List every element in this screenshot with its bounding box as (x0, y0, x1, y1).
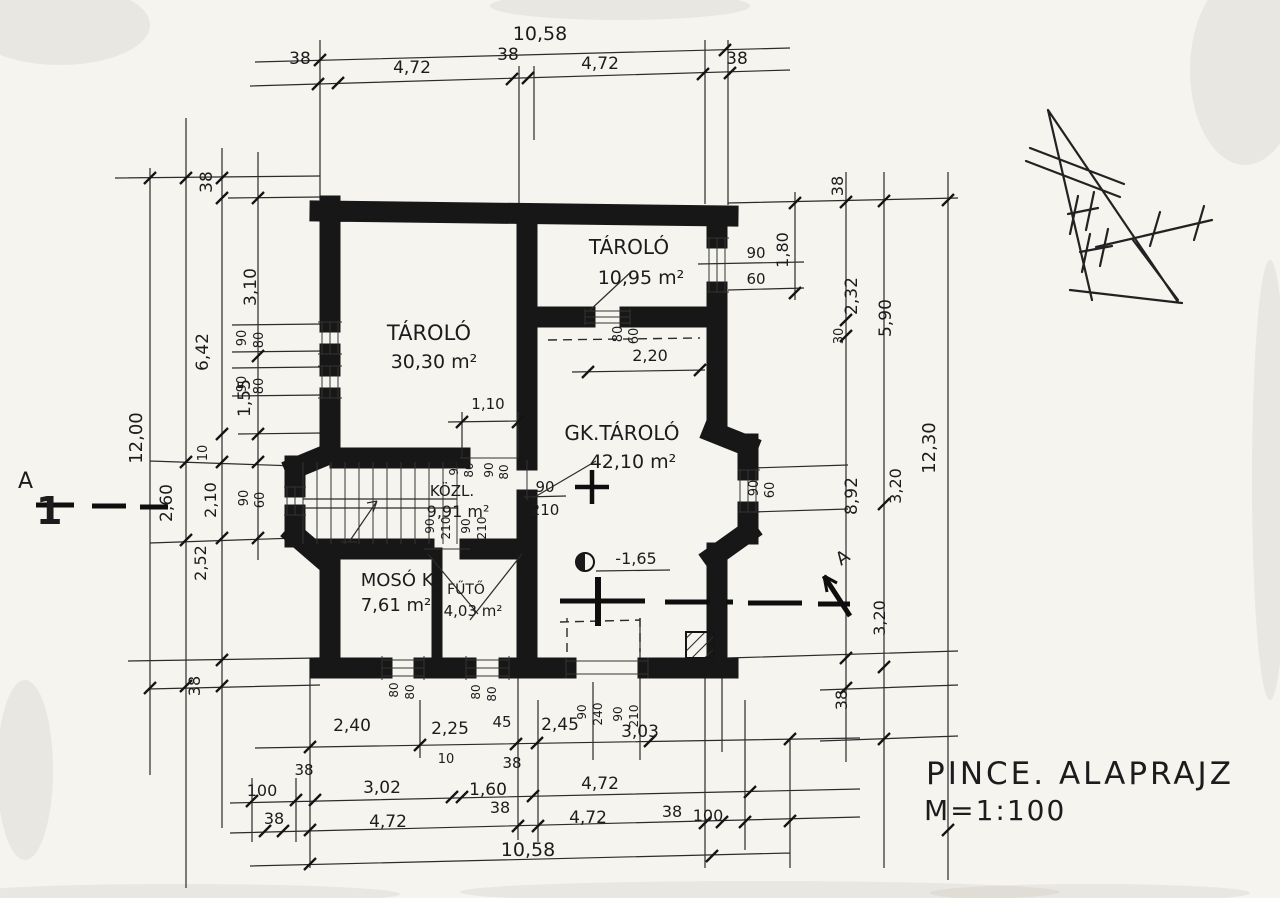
door-size-mark: 240 (591, 703, 605, 726)
dim-left: 38 (197, 171, 217, 193)
dim-bottom: 3,02 (363, 778, 401, 798)
dim-left: 2,52 (191, 545, 210, 581)
dim-right: 38 (828, 176, 847, 196)
right-dimension-chains: 38 1,80 2,32 30 5,90 12,30 8,92 3,20 3,2… (698, 172, 958, 880)
drawing-title: PINCE. ALAPRAJZ (926, 756, 1234, 792)
room-area: 9,91 m² (427, 502, 490, 521)
section-label-left: A (18, 469, 33, 494)
dim-bottom: 1,60 (469, 780, 507, 800)
opening-mark: 90 (235, 330, 250, 347)
section-number: 1 (36, 489, 62, 533)
door-size-mark: 90 (575, 704, 589, 719)
dim-left: 2,60 (157, 484, 177, 522)
opening-mark: 80 (387, 682, 401, 697)
room-name: FŰTŐ (447, 580, 485, 598)
level-mark: -1,65 (576, 549, 657, 571)
dim-right: 5,90 (876, 299, 896, 337)
dim-bottom: 2,40 (333, 716, 371, 736)
dim-top-seg: 38 (289, 49, 311, 69)
dim-left: 10 (196, 445, 211, 462)
dim-right: 8,92 (842, 477, 862, 515)
opening-mark: 80 (462, 462, 476, 477)
dim-right: 3,20 (886, 468, 905, 504)
room-area: 10,95 m² (598, 267, 685, 289)
opening-mark: 90 (447, 460, 461, 475)
section-label-right: A (832, 545, 855, 570)
dim-top-seg: 38 (497, 45, 519, 65)
dim-bottom: 100 (693, 806, 724, 825)
scanned-floor-plan: 10,58 38 4,72 38 4,72 38 38 3,10 6,42 1,… (0, 0, 1280, 898)
dim-right: 12,30 (919, 422, 940, 474)
room-name: MOSÓ K. (361, 569, 440, 591)
dim-right: 2,32 (842, 277, 862, 315)
opening-mark: 80 (403, 684, 417, 699)
dim-bottom: 38 (662, 802, 682, 821)
dim-bottom: 100 (247, 781, 278, 800)
opening-mark: 60 (746, 270, 765, 288)
dim-bottom: 4,72 (581, 774, 619, 794)
opening-mark: 80 (611, 326, 626, 343)
opening-mark: 80 (252, 378, 267, 395)
room-name: TÁROLÓ (588, 235, 669, 259)
opening-mark: 60 (627, 328, 642, 345)
room-area: 30,30 m² (391, 351, 478, 373)
left-dimension-chains: 38 3,10 6,42 1,55 12,00 2,60 10 2,10 2,5… (115, 118, 322, 888)
dim-bottom: 45 (492, 713, 511, 731)
door-size-mark: 210 (627, 705, 641, 728)
dim-right: 1,80 (773, 232, 792, 268)
dim-top-seg: 4,72 (393, 58, 431, 78)
dim-bottom: 38 (490, 798, 510, 817)
door-size-mark: 210 (531, 501, 560, 519)
dim-left: 3,10 (241, 268, 261, 306)
opening-mark: 80 (497, 464, 511, 479)
dim-top-seg: 38 (726, 49, 748, 69)
dim-right: 38 (832, 690, 851, 710)
top-dim-lines (250, 40, 790, 221)
opening-mark: 90 (747, 480, 762, 497)
top-dimension-chain: 10,58 38 4,72 38 4,72 38 (250, 23, 790, 221)
dim-bottom: 2,45 (541, 715, 579, 735)
opening-mark: 90 (235, 376, 250, 393)
door-size-mark: 90 (611, 706, 625, 721)
dim-storage-wall: 2,20 (632, 346, 668, 365)
room-name: KÖZL. (430, 481, 474, 500)
dim-bottom: 10 (438, 752, 455, 767)
chimney-pier (686, 632, 714, 658)
left-dim-ticks (144, 172, 264, 694)
opening-mark: 80 (252, 332, 267, 349)
opening-mark: 90 (746, 244, 765, 262)
dim-bottom: 2,25 (431, 719, 469, 739)
opening-mark: 80 (469, 684, 483, 699)
dim-top-total: 10,58 (513, 23, 567, 45)
dim-bottom: 38 (264, 809, 284, 828)
dim-left: 12,00 (126, 412, 147, 464)
room-area: 7,61 m² (361, 595, 432, 616)
dim-left: 6,42 (193, 333, 213, 371)
dim-right: 3,20 (870, 600, 889, 636)
dim-top-seg: 4,72 (581, 54, 619, 74)
room-name: GK.TÁROLÓ (564, 421, 679, 445)
opening-mark: 60 (763, 482, 778, 499)
room-name: TÁROLÓ (386, 320, 471, 345)
dim-bottom-total: 10,58 (501, 839, 555, 861)
north-arrow-sketch (1026, 110, 1212, 303)
drawing-scale: M=1:100 (924, 794, 1066, 827)
dim-right: 30 (832, 328, 847, 345)
survey-cross (575, 470, 609, 504)
opening-mark: 90 (237, 490, 252, 507)
dim-bottom: 4,72 (569, 808, 607, 828)
opening-mark: 60 (253, 492, 268, 509)
room-area: 4,03 m² (444, 602, 503, 620)
floor-plan-drawing: 10,58 38 4,72 38 4,72 38 38 3,10 6,42 1,… (0, 0, 1280, 898)
opening-mark: 80 (485, 686, 499, 701)
dim-left: 38 (185, 676, 204, 696)
door-size-mark: 90 (535, 478, 554, 496)
opening-mark: 90 (482, 462, 496, 477)
dim-stair-opening: 1,10 (471, 395, 504, 413)
right-dim-lines (698, 172, 958, 880)
dim-left: 2,10 (201, 482, 220, 518)
title-block: PINCE. ALAPRAJZ M=1:100 (924, 756, 1234, 827)
dim-bottom: 38 (294, 761, 313, 779)
dim-bottom: 4,72 (369, 812, 407, 832)
dim-bottom-wall: 38 (502, 754, 521, 772)
level-value: -1,65 (615, 549, 656, 568)
room-area: 42,10 m² (590, 451, 677, 473)
